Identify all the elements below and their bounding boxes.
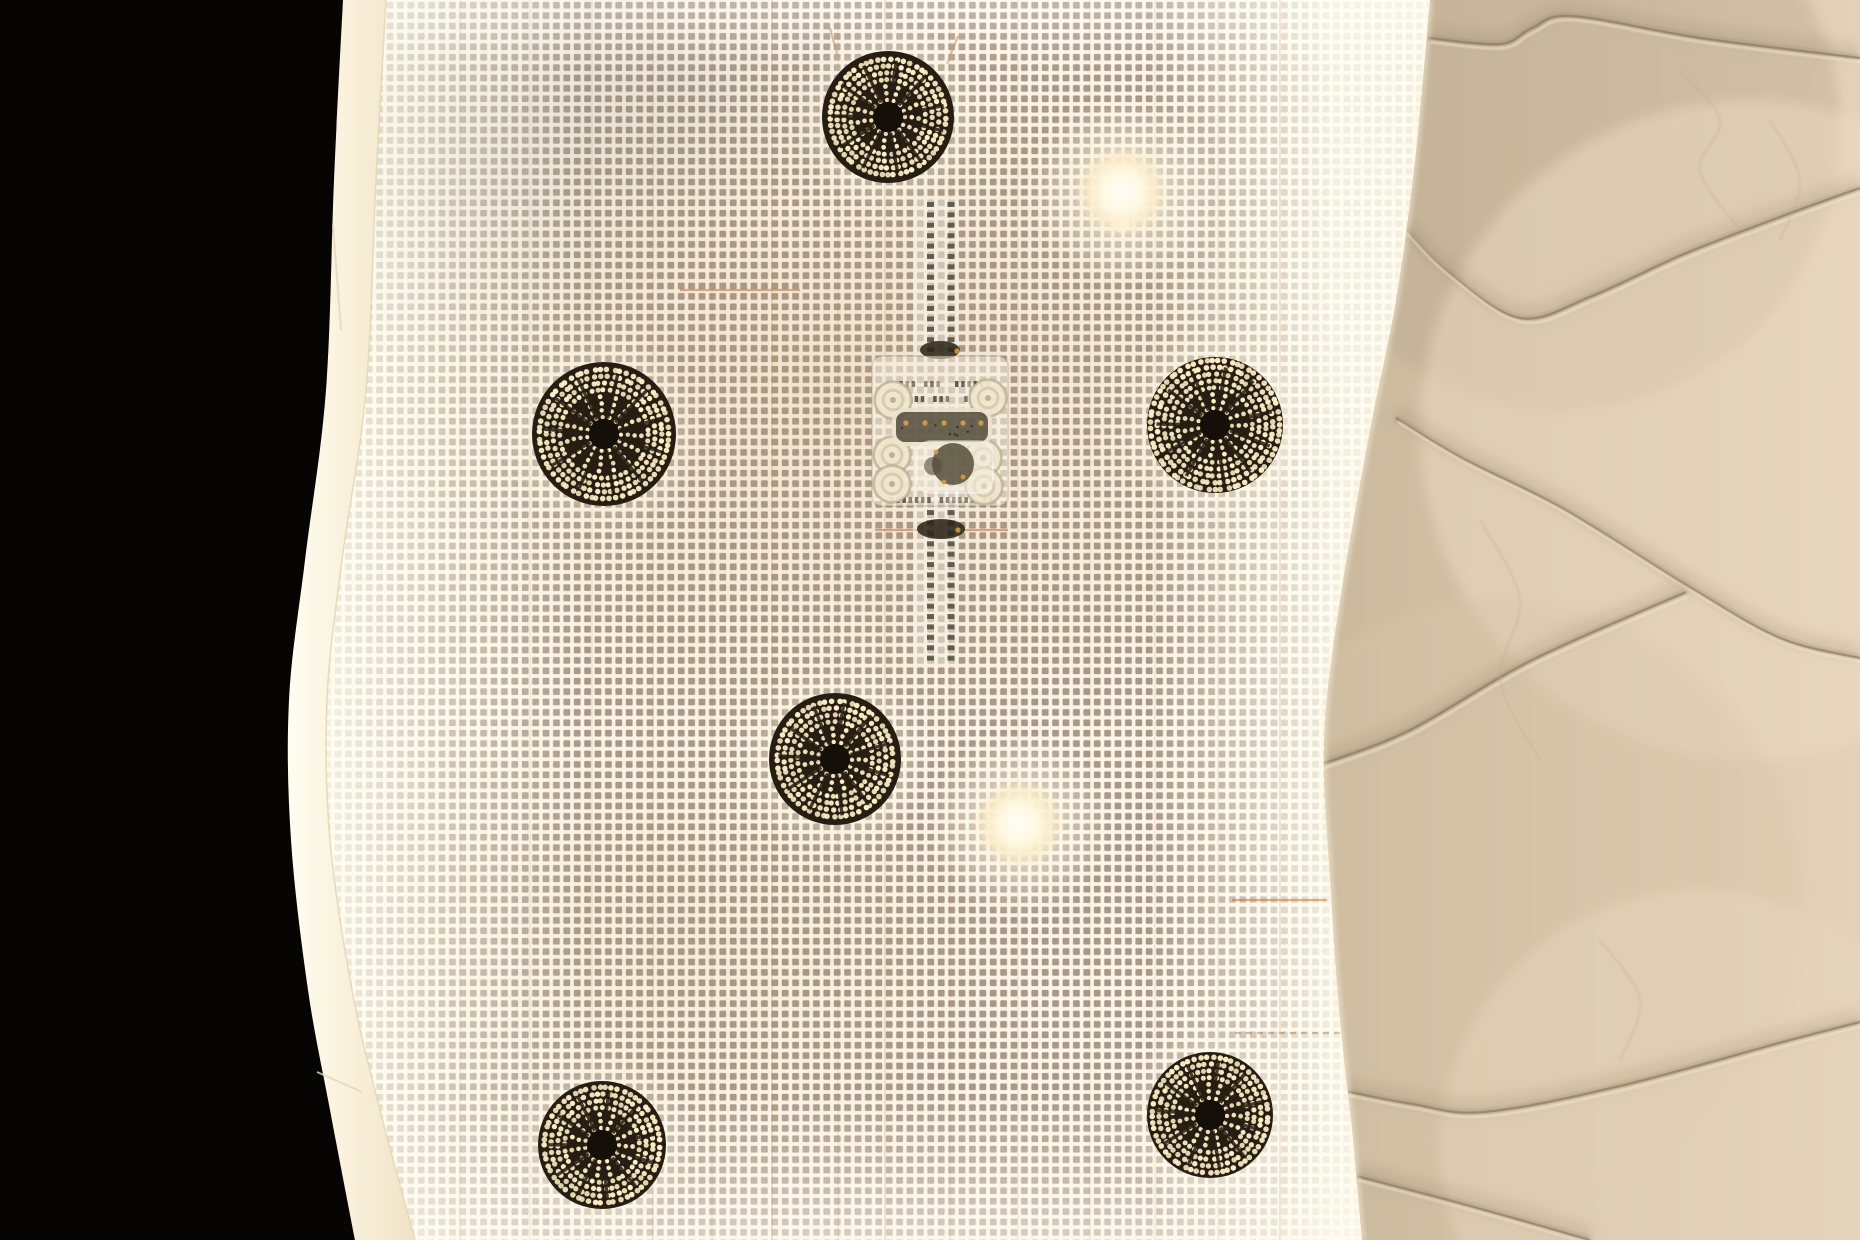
- dot-disc: [741, 665, 929, 853]
- dot-disc: [504, 334, 704, 534]
- dot-disc: [1119, 329, 1311, 521]
- implant-clip: [872, 356, 1008, 506]
- dot-disc: [510, 1053, 694, 1237]
- scene-svg: [0, 0, 1860, 1240]
- dot-disc: [1119, 1024, 1301, 1206]
- photo-root: [0, 0, 1860, 1240]
- dot-disc: [794, 23, 982, 211]
